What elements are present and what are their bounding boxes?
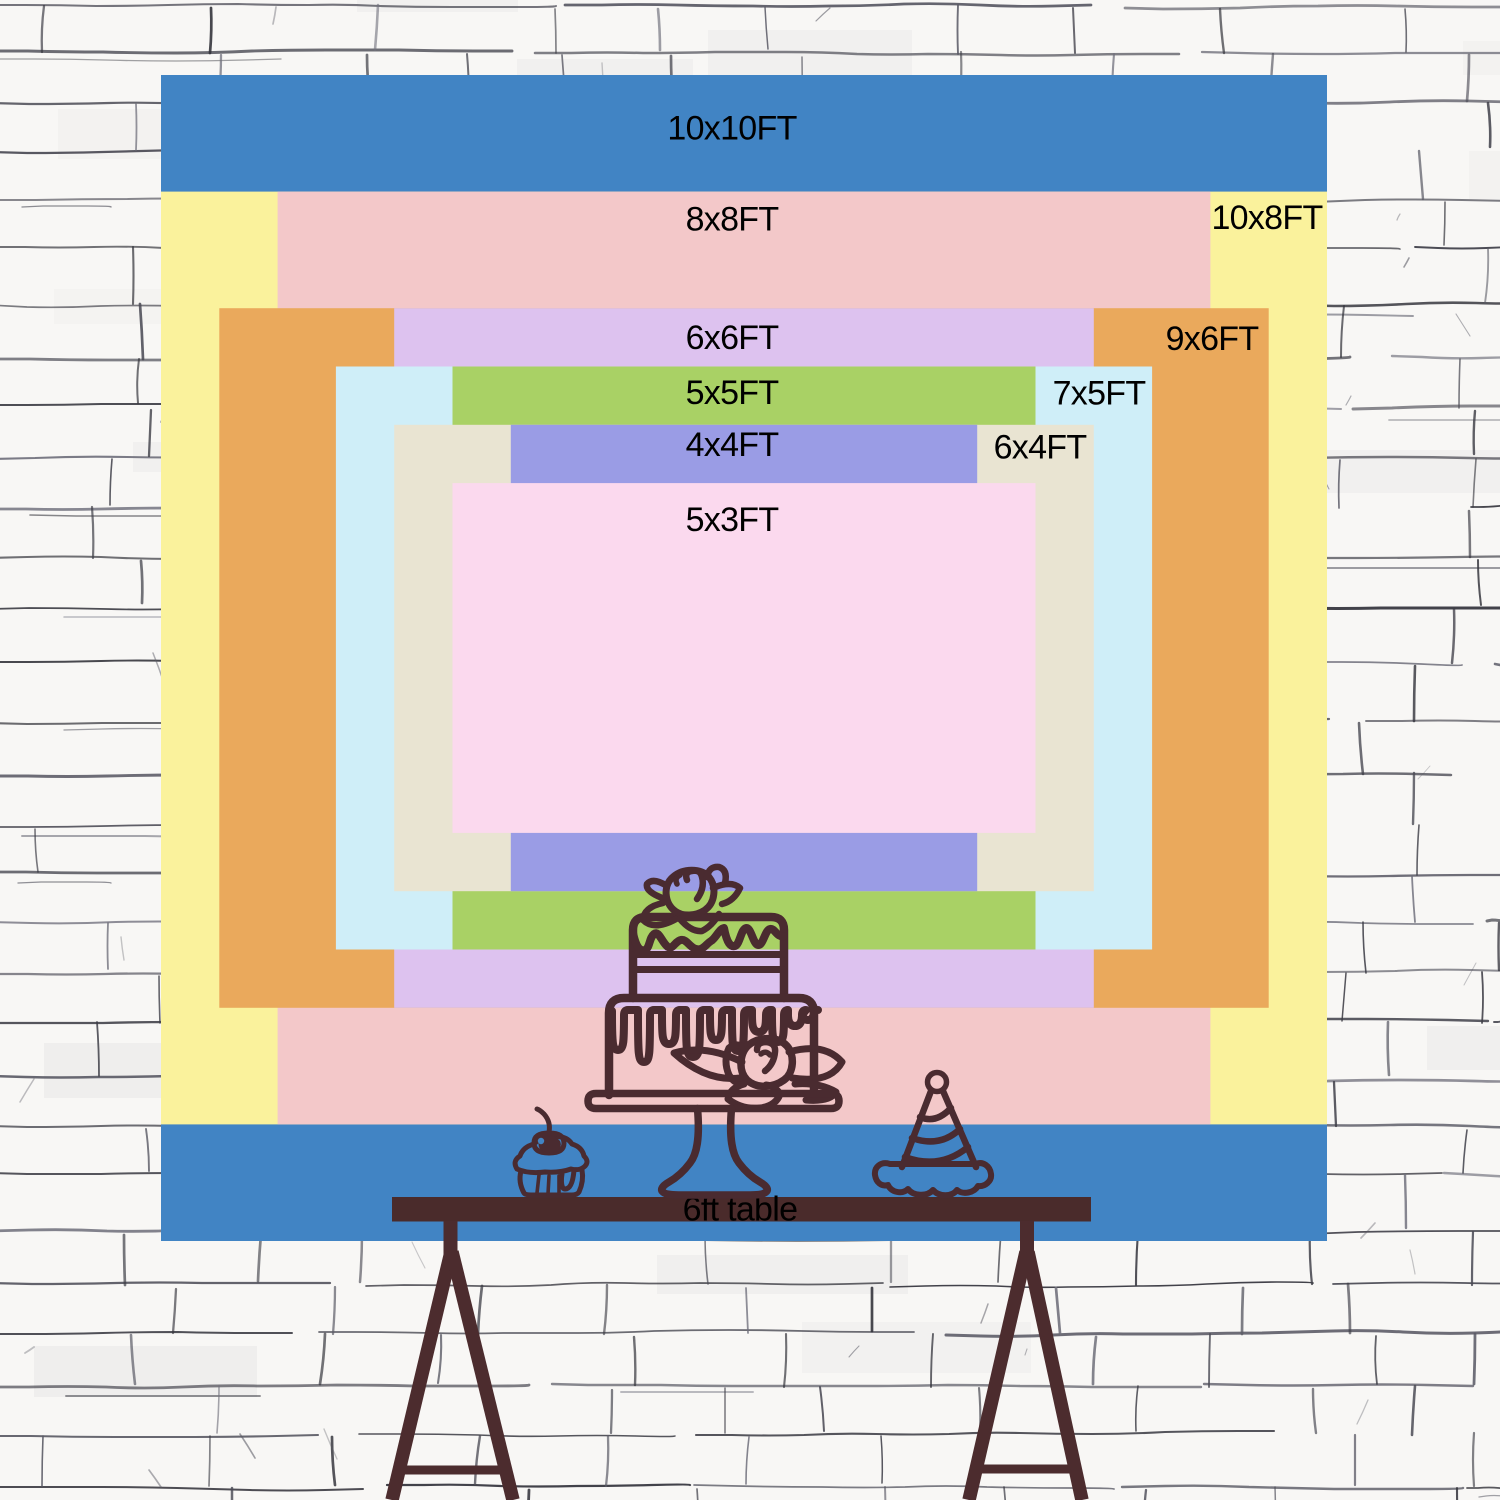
svg-text:8x8FT: 8x8FT [686,201,779,239]
svg-text:6x4FT: 6x4FT [994,429,1087,467]
svg-text:5x5FT: 5x5FT [686,374,779,412]
svg-text:5x3FT: 5x3FT [686,501,779,539]
svg-text:6x6FT: 6x6FT [686,319,779,357]
svg-text:7x5FT: 7x5FT [1053,375,1146,413]
svg-text:10x8FT: 10x8FT [1211,199,1322,237]
svg-text:9x6FT: 9x6FT [1166,320,1259,358]
svg-text:10x10FT: 10x10FT [667,110,796,148]
svg-text:4x4FT: 4x4FT [686,426,779,464]
